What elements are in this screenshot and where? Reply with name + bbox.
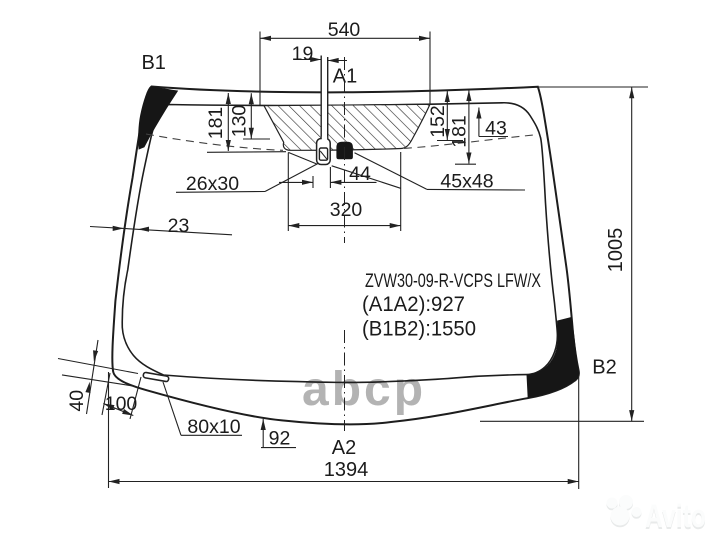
svg-text:abcp: abcp <box>302 363 426 416</box>
svg-text:130: 130 <box>229 105 251 138</box>
svg-text:23: 23 <box>168 215 190 237</box>
svg-text:45x48: 45x48 <box>440 171 493 193</box>
svg-text:B2: B2 <box>592 357 616 379</box>
svg-text:181: 181 <box>449 115 471 148</box>
svg-text:B1: B1 <box>141 52 165 74</box>
svg-text:A1: A1 <box>333 66 357 88</box>
svg-text:ZVW30-09-R-VCPS LFW/X: ZVW30-09-R-VCPS LFW/X <box>365 271 541 292</box>
svg-text:40: 40 <box>66 390 88 412</box>
svg-text:540: 540 <box>328 19 361 41</box>
svg-text:1394: 1394 <box>324 459 369 481</box>
svg-text:44: 44 <box>349 163 371 185</box>
svg-text:1005: 1005 <box>605 228 627 273</box>
svg-text:(A1A2):927: (A1A2):927 <box>362 292 465 316</box>
svg-text:152: 152 <box>427 105 449 138</box>
svg-text:(B1B2):1550: (B1B2):1550 <box>362 317 476 341</box>
svg-text:320: 320 <box>330 199 363 221</box>
svg-text:181: 181 <box>205 107 227 140</box>
svg-text:26x30: 26x30 <box>186 173 239 195</box>
svg-text:A2: A2 <box>332 437 356 459</box>
svg-text:Avito: Avito <box>645 498 706 534</box>
svg-text:92: 92 <box>269 428 291 450</box>
svg-text:80x10: 80x10 <box>187 416 240 438</box>
svg-text:43: 43 <box>485 118 507 140</box>
svg-text:100: 100 <box>105 393 138 415</box>
svg-text:19: 19 <box>292 43 314 65</box>
